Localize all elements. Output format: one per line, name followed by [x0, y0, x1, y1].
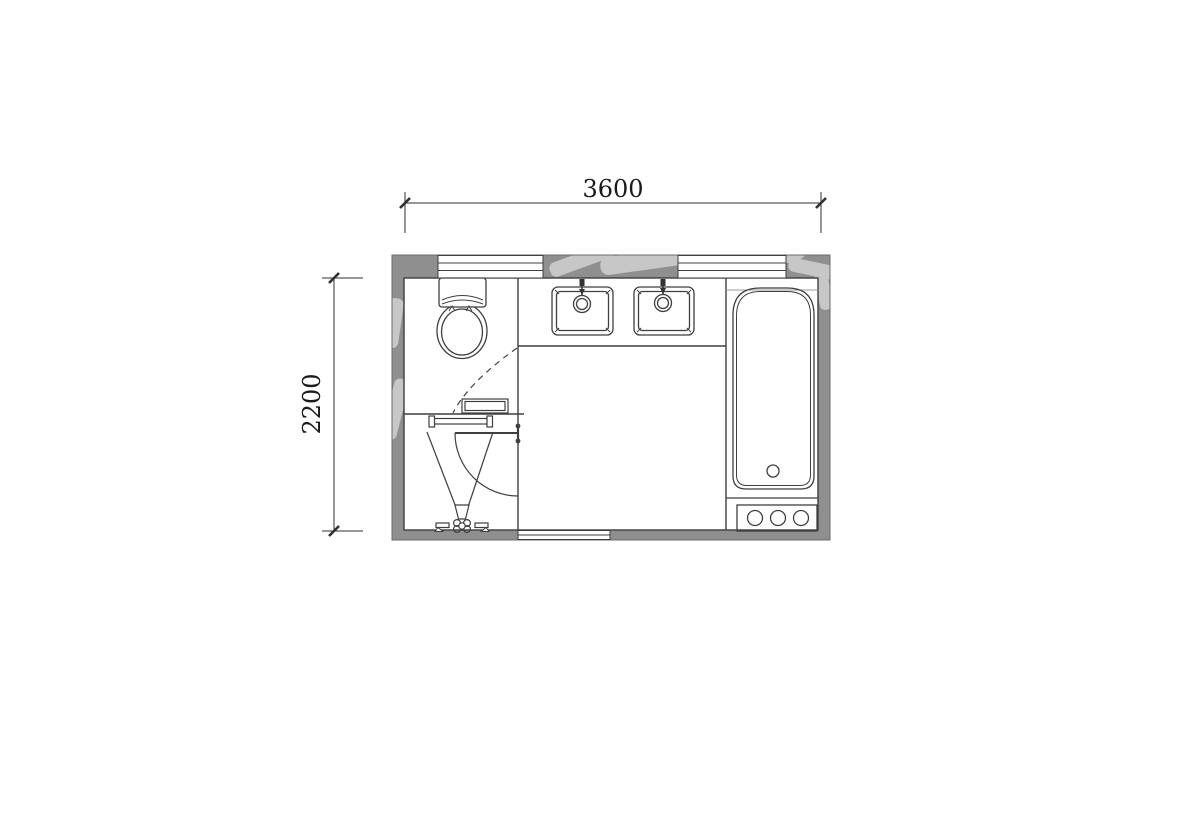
floor-plan-drawing: 3600 2200 — [0, 0, 1198, 831]
window-bottom-icon — [518, 530, 610, 540]
height-dimension-label: 2200 — [298, 373, 326, 434]
shelf-icon — [462, 399, 508, 413]
floor-plan-canvas: 3600 2200 — [0, 0, 1198, 831]
width-dimension-label: 3600 — [582, 175, 643, 203]
window-top-left-icon — [438, 255, 543, 278]
dimension-height — [322, 273, 363, 536]
window-top-right-icon — [678, 255, 786, 278]
